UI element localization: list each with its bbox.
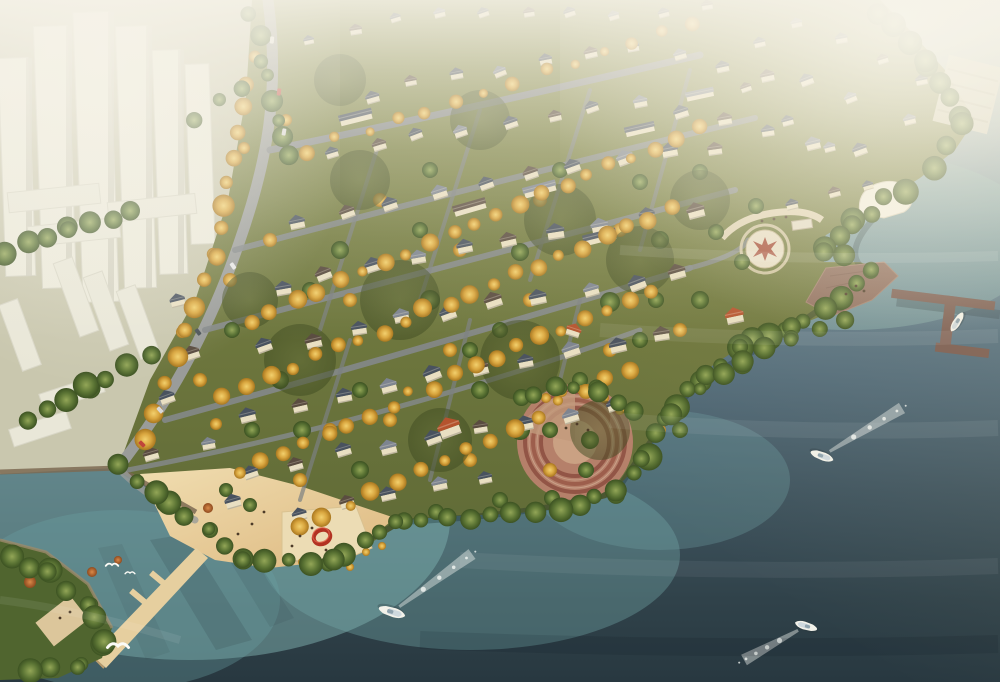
aerial-rendering-scene	[0, 0, 1000, 682]
atmosphere-haze	[0, 0, 1000, 682]
rendering-canvas	[0, 0, 1000, 682]
